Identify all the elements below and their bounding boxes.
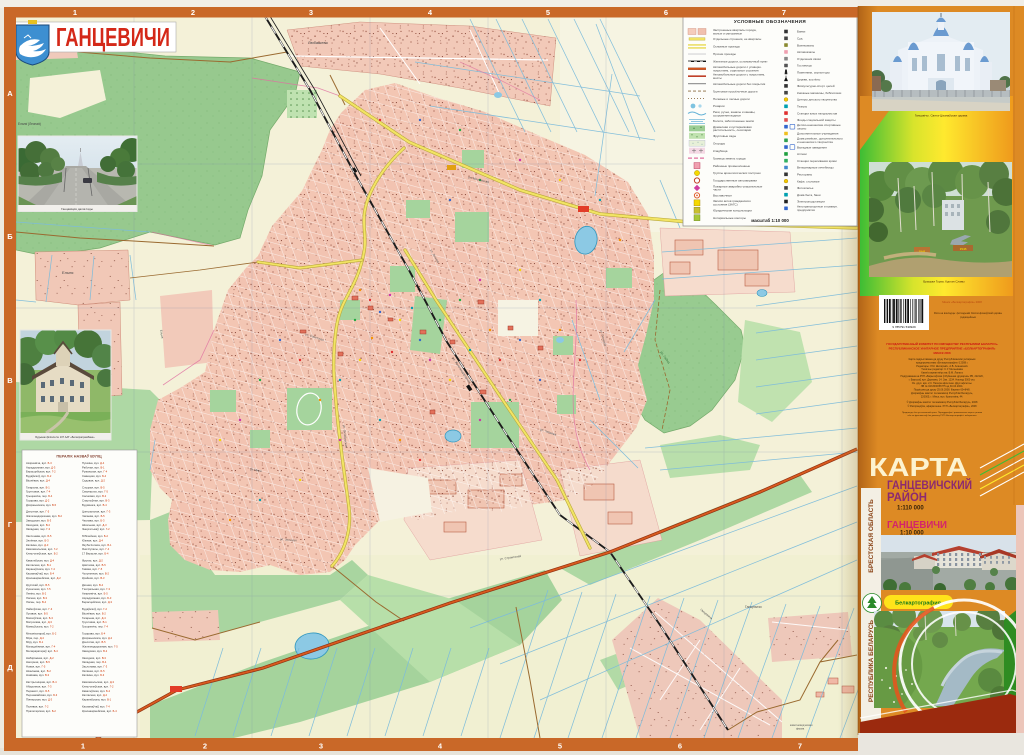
svg-text:Огороды: Огороды (713, 141, 725, 145)
svg-text:1: 1 (73, 8, 77, 17)
svg-text:Пралетарская, вул. Б-2: Пралетарская, вул. Б-2 (26, 709, 56, 713)
svg-text:школы: школы (797, 127, 806, 131)
svg-text:3: 3 (309, 8, 313, 17)
svg-text:Грыцкевіча, пер. Г-4: Грыцкевіча, пер. Г-4 (82, 625, 108, 629)
svg-text:Аэрадромная, вул. Б-3: Аэрадромная, вул. Б-3 (82, 596, 112, 600)
svg-text:Фонды социальной защиты: Фонды социальной защиты (797, 118, 835, 122)
svg-text:Краснаармейская, вул. Д-2: Краснаармейская, вул. Д-2 (26, 576, 61, 580)
svg-text:Рестораны: Рестораны (797, 173, 812, 177)
svg-text:Любашево: Любашево (308, 40, 329, 45)
svg-text:Б: Б (7, 232, 13, 241)
svg-text:Цэнтральная, вул. Г-3: Цэнтральная, вул. Г-3 (82, 510, 111, 514)
svg-text:Лясны, пер. В-4: Лясны, пер. В-4 (26, 600, 47, 604)
svg-text:Фотоателье: Фотоателье (797, 186, 814, 190)
svg-text:Дополнительные учреждения: Дополнительные учреждения (797, 132, 839, 136)
svg-text:Будаўнікоў, вул. Г-2: Будаўнікоў, вул. Г-2 (82, 607, 108, 611)
svg-text:Заводская, вул. В-3: Заводская, вул. В-3 (26, 518, 52, 522)
svg-text:Пушкіна, вул. Д-4: Пушкіна, вул. Д-4 (82, 461, 105, 465)
svg-text:Крайняя, вул. В-3: Крайняя, вул. В-3 (82, 576, 105, 580)
svg-text:Суд: Суд (797, 37, 803, 41)
svg-text:В: В (7, 376, 13, 385)
svg-text:Ганцавіцкія далягляды: Ганцавіцкія далягляды (61, 207, 93, 211)
svg-text:Выездные заведения: Выездные заведения (797, 145, 827, 149)
svg-text:2: 2 (203, 742, 207, 751)
svg-text:Вішнёвая, вул. Д-4: Вішнёвая, вул. Д-4 (26, 478, 50, 482)
svg-text:7: 7 (782, 8, 786, 17)
svg-text:Першамайская, вул. Б-3: Першамайская, вул. Б-3 (26, 693, 58, 697)
svg-text:Гусарава, вул. Д-2: Гусарава, вул. Д-2 (26, 498, 50, 502)
svg-text:Маладзёжная, вул. Г-4: Маладзёжная, вул. Г-4 (26, 645, 56, 649)
svg-text:Камсамольская, вул. Г-2: Камсамольская, вул. Г-2 (26, 547, 58, 551)
svg-text:Станции переливания крови: Станции переливания крови (797, 159, 837, 163)
svg-text:Садовая, вул. Д-2: Садовая, вул. Д-2 (82, 478, 105, 482)
svg-text:РЕСПУБЛИКА БЕЛАРУСЬ: РЕСПУБЛИКА БЕЛАРУСЬ (868, 620, 875, 703)
svg-text:Заходняя, вул. В-3: Заходняя, вул. В-3 (82, 656, 106, 660)
svg-text:Кавалеўская, вул. Д-4: Кавалеўская, вул. Д-4 (26, 558, 55, 562)
svg-text:Дзесятая, вул. Г-5: Дзесятая, вул. Г-5 (26, 510, 50, 514)
svg-text:Полевые и лесные дороги: Полевые и лесные дороги (713, 97, 750, 101)
svg-text:Центры детского творчества: Центры детского творчества (797, 98, 837, 102)
svg-text:Кузнечная, вул. Г-5: Кузнечная, вул. Г-5 (26, 587, 51, 591)
svg-text:Чкалава, вул. Б-3: Чкалава, вул. Б-3 (82, 518, 105, 522)
svg-text:Дзяржынскага, вул. В-5: Дзяржынскага, вул. В-5 (26, 503, 57, 507)
svg-text:1: 1 (81, 742, 85, 751)
svg-text:Каранеўскага, вул. Г-4: Каранеўскага, вул. Г-4 (26, 567, 55, 571)
svg-text:Новая, вул. Г-5: Новая, вул. Г-5 (26, 665, 46, 669)
svg-text:Ельня: Ельня (62, 270, 73, 275)
svg-text:Міра, пер. Д-4: Міра, пер. Д-4 (26, 636, 44, 640)
svg-text:Военкоматы: Военкоматы (797, 43, 814, 47)
svg-text:© Распрацоўка, афармленне. РУ: © Распрацоўка, афармленне. РУП «Белкарта… (907, 405, 977, 408)
svg-text:220005, г. Мінск, вул. Крапотк: 220005, г. Мінск, вул. Крапоткіна, 44. (921, 395, 963, 398)
svg-text:Розарии: Розарии (713, 104, 725, 108)
svg-text:Физкультурно-спорт. целей: Физкультурно-спорт. целей (797, 84, 835, 88)
svg-text:Автовокзалы: Автовокзалы (797, 50, 815, 54)
svg-text:РАЙОН: РАЙОН (887, 489, 927, 504)
svg-text:Калініна, вул. Б-3: Калініна, вул. Б-3 (82, 673, 105, 677)
svg-text:А: А (7, 89, 13, 98)
svg-text:Маскоўская, вул. Б-3: Маскоўская, вул. Б-3 (26, 616, 53, 620)
svg-text:Маякоўскага, вул. Г-2: Маякоўскага, вул. Г-2 (26, 625, 54, 629)
svg-text:17 Верасня, вул. Б-4: 17 Верасня, вул. Б-4 (82, 552, 109, 556)
svg-text:Театры: Театры (797, 105, 807, 109)
svg-text:Берасцейская, вул. Д-3: Берасцейская, вул. Д-3 (82, 600, 112, 604)
svg-text:Піянерская, вул. Д-3: Піянерская, вул. Д-3 (26, 698, 53, 702)
svg-text:Берасцейская, вул. Г-2: Берасцейская, вул. Г-2 (26, 470, 56, 474)
svg-text:Будзёнага, вул. В-4: Будзёнага, вул. В-4 (82, 503, 107, 507)
svg-text:3: 3 (319, 742, 323, 751)
svg-text:БРЕСТСКАЯ ОБЛАСТЬ: БРЕСТСКАЯ ОБЛАСТЬ (868, 499, 875, 573)
svg-text:Минск «Белкартаграфія» 2008: Минск «Белкартаграфія» 2008 (942, 300, 982, 304)
svg-text:Ружанская, вул. Г-4: Ружанская, вул. Г-4 (82, 470, 108, 474)
svg-text:Азяркевіча, вул. Б-3: Азяркевіча, вул. Б-3 (26, 461, 52, 465)
svg-text:Дома быта, бани: Дома быта, бани (797, 193, 821, 197)
svg-text:Кляшчэлеўская, вул. Б-2: Кляшчэлеўская, вул. Б-2 (26, 552, 58, 556)
svg-text:Заслонава, вул. Г-3: Заслонава, вул. Г-3 (82, 665, 108, 669)
svg-text:Ветеринарные лечебницы: Ветеринарные лечебницы (797, 166, 834, 170)
svg-text:Тэатральная, вул. Г-3: Тэатральная, вул. Г-3 (82, 587, 111, 591)
svg-text:Банки: Банки (797, 30, 806, 34)
svg-text:Зялёная, вул. Б-3: Зялёная, вул. Б-3 (26, 538, 49, 542)
svg-text:Ганцавічы. Свята-Ціханаўская ц: Ганцавічы. Свята-Ціханаўская царква (915, 114, 968, 118)
svg-text:Брацкая Горка. Курган Славы: Брацкая Горка. Курган Славы (923, 280, 964, 284)
svg-text:Грунтовая, вул. Г-4: Грунтовая, вул. Г-4 (26, 490, 51, 494)
svg-text:Белкартография: Белкартография (895, 600, 941, 607)
svg-text:Набярэжная, вул. Д-2: Набярэжная, вул. Д-2 (26, 656, 54, 660)
svg-text:ПЕРАЛІК НАЗВАЎ ВУЛІЦ: ПЕРАЛІК НАЗВАЎ ВУЛІЦ (56, 455, 101, 459)
svg-text:Кляшчэлеўская, вул. Г-2: Кляшчэлеўская, вул. Г-2 (82, 685, 114, 689)
svg-text:Калгасная, вул. Д-4: Калгасная, вул. Д-4 (82, 693, 107, 697)
svg-text:Новікава, вул. В-3: Новікава, вул. В-3 (26, 673, 50, 677)
svg-text:Гагарына, вул. Д-4: Гагарына, вул. Д-4 (82, 616, 106, 620)
svg-text:растительность, лесопарки: растительность, лесопарки (713, 128, 751, 132)
svg-text:Книжные магазины, библиотеки: Книжные магазины, библиотеки (797, 91, 842, 95)
svg-text:Кладбища: Кладбища (713, 149, 728, 153)
svg-text:предприятия: предприятия (797, 208, 815, 212)
svg-text:5: 5 (558, 742, 562, 751)
svg-text:Автомобильные дороги без покры: Автомобильные дороги без покрытия (713, 82, 766, 86)
svg-text:Жалезнадарожная, вул. Г-5: Жалезнадарожная, вул. Г-5 (82, 645, 118, 649)
svg-text:УСЛОВНЫЕ ОБОЗНАЧЕНИЯ: УСЛОВНЫЕ ОБОЗНАЧЕНИЯ (734, 19, 806, 24)
svg-text:мосты: мосты (713, 76, 722, 80)
svg-text:Краснаармейская, вул. Б-4: Краснаармейская, вул. Б-4 (82, 709, 117, 713)
svg-text:Железные дороги, остановочный: Железные дороги, остановочный пункт (713, 60, 768, 64)
svg-text:2: 2 (191, 8, 195, 17)
svg-text:Палявая, вул. Г-2: Палявая, вул. Г-2 (26, 705, 49, 709)
svg-text:1:110 000: 1:110 000 (897, 506, 924, 512)
svg-text:и юношеского творчества: и юношеского творчества (797, 140, 833, 144)
svg-text:Абаронная, вул. Г-3: Абаронная, вул. Г-3 (26, 685, 52, 689)
svg-text:Ганцевичи: Ганцевичи (745, 605, 762, 609)
svg-text:Лясная, вул. В-3: Лясная, вул. В-3 (26, 596, 47, 600)
svg-text:Основные проезды: Основные проезды (713, 45, 740, 49)
svg-text:Гаёвая, вул. Г-5: Гаёвая, вул. Г-5 (82, 567, 103, 571)
svg-text:Отдельные строения, не квартал: Отдельные строения, не кварталы (713, 37, 761, 41)
svg-text:Д: Д (7, 663, 13, 672)
svg-text:Группы археологических построе: Группы археологических построек (713, 171, 761, 175)
svg-text:Западная, пер. Г-3: Западная, пер. Г-3 (26, 527, 51, 531)
svg-text:ферма: ферма (796, 727, 805, 731)
svg-text:1945: 1945 (960, 247, 967, 251)
svg-text:Памятники, скульптуры: Памятники, скульптуры (797, 71, 830, 75)
svg-text:ГАНЦЕВИЧИ: ГАНЦЕВИЧИ (56, 22, 170, 52)
svg-text:РЕСПУБЛИКАНСКОЕ УНИТАРНОЕ ПРЕД: РЕСПУБЛИКАНСКОЕ УНИТАРНОЕ ПРЕДПРИЯТИЕ «Б… (889, 347, 996, 351)
svg-text:Каранеўскага, вул. В-1: Каранеўскага, вул. В-1 (82, 698, 112, 702)
svg-text:Районные промышленные: Районные промышленные (713, 164, 750, 168)
svg-text:6: 6 (664, 8, 668, 17)
svg-text:© Дзяржаўны камітэт па маёмас: © Дзяржаўны камітэт па маёмасці Рэспублі… (907, 401, 978, 404)
svg-text:Выставочные: Выставочные (713, 194, 732, 198)
svg-text:Прадаецца без усталяванай цаны: Прадаецца без усталяванай цаны. Перадрук… (902, 411, 983, 414)
svg-text:Аптеки: Аптеки (797, 152, 807, 156)
svg-text:Церкви, костёлы: Церкви, костёлы (797, 77, 820, 81)
svg-text:Заводская, вул. В-2: Заводская, вул. В-2 (82, 649, 108, 653)
svg-text:Граница земель города: Граница земель города (713, 156, 746, 160)
svg-text:Фота на вокладцы: фотаздымкі: Фота на вокладцы: фотаздымкі Свята-Ціхан… (934, 312, 1002, 315)
svg-text:Электроподстанции: Электроподстанции (797, 200, 825, 204)
svg-text:МИНСК 2008: МИНСК 2008 (933, 351, 951, 355)
svg-text:жилые и смешанные: жилые и смешанные (713, 31, 742, 35)
svg-text:Отделения связи: Отделения связи (797, 57, 821, 61)
svg-text:Прочие проезды: Прочие проезды (713, 52, 736, 56)
svg-text:Нотариальные конторы: Нотариальные конторы (713, 216, 746, 220)
svg-text:Спартыўная, вул. В-3: Спартыўная, вул. В-3 (82, 498, 110, 502)
svg-text:9 785791 530929: 9 785791 530929 (892, 325, 916, 329)
svg-text:Гостиницы: Гостиницы (797, 64, 812, 68)
svg-text:Касманаўтаў, вул. Г-4: Касманаўтаў, вул. Г-4 (82, 705, 110, 709)
svg-text:масштаб 1:10 000: масштаб 1:10 000 (751, 218, 789, 223)
svg-text:Г: Г (8, 520, 13, 529)
svg-text:Энергетыкаў, вул. Г-2: Энергетыкаў, вул. Г-2 (82, 527, 110, 531)
svg-text:Лайкоўская, вул. Г-3: Лайкоўская, вул. Г-3 (26, 607, 53, 611)
svg-text:6: 6 (678, 742, 682, 751)
svg-text:Янкі Купалы, вул. Г-4: Янкі Купалы, вул. Г-4 (82, 547, 110, 551)
svg-text:Грунтовые просёлочные дороги: Грунтовые просёлочные дороги (713, 89, 758, 93)
svg-text:Болота, заболоченные земли: Болота, заболоченные земли (713, 119, 754, 123)
svg-text:Мелараратараў, вул. Б-4: Мелараратараў, вул. Б-4 (26, 649, 58, 653)
svg-text:5: 5 (546, 8, 550, 17)
svg-text:або яе фрагментаў без дазволу: або яе фрагментаў без дазволу РУП «Белка… (907, 414, 977, 417)
svg-text:Смалярova, вул. Г-5: Смалярova, вул. Г-5 (82, 490, 108, 494)
svg-text:Ельня (Лесная): Ельня (Лесная) (18, 122, 41, 126)
svg-text:Южная, вул. Д-4: Южная, вул. Д-4 (82, 538, 103, 542)
svg-text:Государственные автозаправки: Государственные автозаправки (713, 179, 757, 183)
svg-text:ГОСУДАРСТВЕННЫЙ КОМИТЕТ ПО ИМУ: ГОСУДАРСТВЕННЫЙ КОМИТЕТ ПО ИМУЩЕСТВУ РЕС… (886, 342, 998, 346)
svg-text:Фруктовые сады: Фруктовые сады (713, 134, 736, 138)
svg-text:Станции юных натуралистов: Станции юных натуралистов (797, 111, 838, 115)
svg-text:части: части (713, 188, 721, 192)
svg-text:Юридические консультации: Юридические консультации (713, 209, 752, 213)
svg-text:Кафе, столовые: Кафе, столовые (797, 179, 820, 183)
svg-text:ГАНЦЕВИЧИ: ГАНЦЕВИЧИ (887, 519, 947, 531)
svg-text:рэдакцыйныя: рэдакцыйныя (960, 316, 976, 319)
svg-text:состояния (ЗАГС): состояния (ЗАГС) (713, 203, 738, 207)
svg-text:Фрунзэ, вул. Д-2: Фрунзэ, вул. Д-2 (82, 558, 103, 562)
svg-text:Дзяржынскага, вул. Д-2: Дзяржынскага, вул. Д-2 (82, 636, 113, 640)
svg-text:сооружения водные: сооружения водные (713, 113, 741, 117)
svg-text:7: 7 (798, 742, 802, 751)
svg-text:Будынак філіяла № 107 ААТ «Бел: Будынак філіяла № 107 ААТ «Белаграпрамба… (35, 435, 95, 439)
